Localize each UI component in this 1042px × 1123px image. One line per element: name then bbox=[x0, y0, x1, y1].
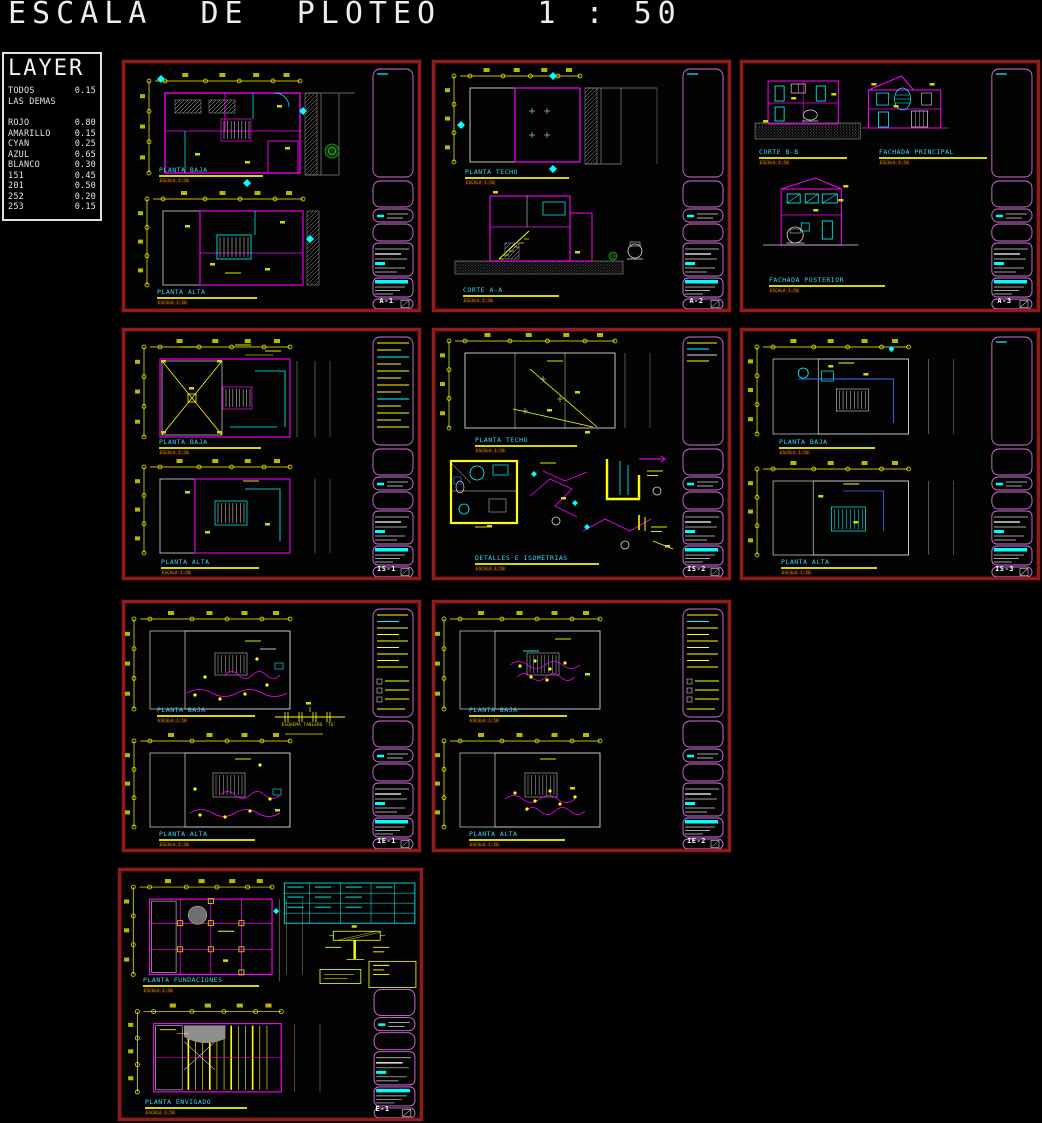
esquema-tablero-label: ESQUEMA TABLERO 'TG' bbox=[271, 722, 347, 728]
sheet-a-3[interactable]: CORTE B-BESCALA 1:50FACHADA PRINCIPALESC… bbox=[740, 60, 1040, 312]
plan-title-text: PLANTA BAJA bbox=[779, 438, 828, 446]
sheet-drawing bbox=[125, 63, 418, 309]
plan-title-underline bbox=[161, 567, 259, 569]
plan-title: DETALLES E ISOMETRIASESCALA 1:50 bbox=[475, 555, 599, 571]
plan-scale-label: ESCALA 1:50 bbox=[159, 179, 190, 183]
sheet-drawing bbox=[435, 63, 728, 309]
layer-entries: TODOS0.15LAS DEMASROJO0.80AMARILLO0.15CY… bbox=[8, 86, 96, 213]
layer-name: 253 bbox=[8, 202, 24, 213]
plan-title-text: PLANTA BAJA bbox=[159, 166, 208, 174]
plan-scale-label: ESCALA 1:50 bbox=[159, 843, 190, 847]
layer-row: AMARILLO0.15 bbox=[8, 129, 96, 140]
plan-title: PLANTA BAJAESCALA 1:50 bbox=[779, 439, 875, 455]
plan-scale-label: ESCALA 1:50 bbox=[469, 719, 500, 723]
sheet-number: IS-1 bbox=[374, 566, 399, 573]
layer-row: TODOS0.15 bbox=[8, 86, 96, 97]
plan-title-underline bbox=[159, 839, 255, 841]
plan-title: PLANTA BAJAESCALA 1:50 bbox=[159, 439, 261, 455]
layer-row: 2010.50 bbox=[8, 181, 96, 192]
sheet-number: IE-1 bbox=[374, 838, 399, 845]
plan-scale-label: ESCALA 1:50 bbox=[157, 301, 188, 305]
plan-title: FACHADA POSTERIORESCALA 1:50 bbox=[769, 277, 885, 293]
plan-title-text: FACHADA POSTERIOR bbox=[769, 276, 844, 284]
sheet-number: IE-2 bbox=[684, 838, 709, 845]
plan-scale-label: ESCALA 1:50 bbox=[161, 571, 192, 575]
plan-title-underline bbox=[143, 985, 259, 987]
plan-title-text: PLANTA BAJA bbox=[159, 438, 208, 446]
layer-name: TODOS bbox=[8, 86, 35, 97]
plan-title-underline bbox=[157, 715, 255, 717]
plan-title-text: PLANTA ALTA bbox=[157, 288, 206, 296]
plan-title-underline bbox=[463, 295, 559, 297]
layer-name: 201 bbox=[8, 181, 24, 192]
plan-title-text: DETALLES E ISOMETRIAS bbox=[475, 554, 568, 562]
plan-title-underline bbox=[465, 177, 569, 179]
plan-title-underline bbox=[159, 447, 261, 449]
plan-title-text: PLANTA BAJA bbox=[157, 706, 206, 714]
plan-scale-label: ESCALA 1:50 bbox=[157, 719, 188, 723]
sheet-number: IS-3 bbox=[992, 566, 1017, 573]
plan-title-text: PLANTA ENVIGADO bbox=[145, 1098, 211, 1106]
sheet-is-1[interactable]: PLANTA BAJAESCALA 1:50PLANTA ALTAESCALA … bbox=[122, 328, 421, 580]
layer-lineweight: 0.15 bbox=[75, 86, 96, 97]
layer-row: 1510.45 bbox=[8, 171, 96, 182]
plan-title-underline bbox=[779, 447, 875, 449]
layer-name: AZUL bbox=[8, 150, 29, 161]
sheet-number: E-1 bbox=[370, 1106, 395, 1113]
plan-title: PLANTA ENVIGADOESCALA 1:50 bbox=[145, 1099, 247, 1115]
plan-scale-label: ESCALA 1:50 bbox=[759, 161, 790, 165]
plan-title-underline bbox=[469, 715, 567, 717]
plan-title-text: PLANTA TECHO bbox=[465, 168, 518, 176]
layer-lineweight: 0.15 bbox=[75, 129, 96, 140]
plan-title-underline bbox=[157, 297, 257, 299]
layer-lineweight: 0.50 bbox=[75, 181, 96, 192]
layer-panel-title: LAYER bbox=[8, 56, 96, 81]
plan-title-underline bbox=[769, 285, 885, 287]
layer-lineweight: 0.15 bbox=[75, 202, 96, 213]
plan-scale-label: ESCALA 1:50 bbox=[475, 449, 506, 453]
sheet-ie-2[interactable]: PLANTA BAJAESCALA 1:50PLANTA ALTAESCALA … bbox=[432, 600, 731, 852]
sheet-number: A-1 bbox=[374, 298, 399, 305]
sheet-drawing bbox=[743, 63, 1037, 309]
layer-row: 2520.20 bbox=[8, 192, 96, 203]
layer-row: LAS DEMAS bbox=[8, 97, 96, 108]
plan-title: PLANTA ALTAESCALA 1:50 bbox=[781, 559, 877, 575]
sheet-is-2[interactable]: PLANTA TECHOESCALA 1:50DETALLES E ISOMET… bbox=[432, 328, 731, 580]
sheet-number: A-2 bbox=[684, 298, 709, 305]
plan-title-text: CORTE B-B bbox=[759, 148, 799, 156]
sheet-drawing bbox=[435, 331, 728, 577]
layer-name: LAS DEMAS bbox=[8, 97, 56, 108]
plan-title: PLANTA ALTAESCALA 1:50 bbox=[159, 831, 255, 847]
plan-title-underline bbox=[475, 563, 599, 565]
plan-title: PLANTA TECHOESCALA 1:50 bbox=[475, 437, 577, 453]
plan-scale-label: ESCALA 1:50 bbox=[779, 451, 810, 455]
layer-row: ROJO0.80 bbox=[8, 118, 96, 129]
plan-scale-label: ESCALA 1:50 bbox=[879, 161, 910, 165]
plan-title: CORTE B-BESCALA 1:50 bbox=[759, 149, 847, 165]
layer-lineweight: 0.20 bbox=[75, 192, 96, 203]
layer-name: CYAN bbox=[8, 139, 29, 150]
plan-title: PLANTA ALTAESCALA 1:50 bbox=[157, 289, 257, 305]
plan-title-text: PLANTA ALTA bbox=[159, 830, 208, 838]
plan-scale-label: ESCALA 1:50 bbox=[463, 299, 494, 303]
plan-scale-label: ESCALA 1:50 bbox=[769, 289, 800, 293]
plan-scale-label: ESCALA 1:50 bbox=[469, 843, 500, 847]
plan-title-underline bbox=[879, 157, 987, 159]
sheet-a-1[interactable]: PLANTA BAJAESCALA 1:50PLANTA ALTAESCALA … bbox=[122, 60, 421, 312]
plan-title: CORTE A-AESCALA 1:50 bbox=[463, 287, 559, 303]
plan-scale-label: ESCALA 1:50 bbox=[159, 451, 190, 455]
plan-title: PLANTA FUNDACIONESESCALA 1:50 bbox=[143, 977, 259, 993]
sheet-number: IS-2 bbox=[684, 566, 709, 573]
plan-title-underline bbox=[159, 175, 263, 177]
layer-name: 252 bbox=[8, 192, 24, 203]
layer-row: AZUL0.65 bbox=[8, 150, 96, 161]
plan-title-text: CORTE A-A bbox=[463, 286, 503, 294]
plot-scale-title: ESCALA DE PLOTEO 1 : 50 bbox=[8, 0, 682, 31]
plan-title-text: PLANTA ALTA bbox=[781, 558, 830, 566]
layer-name: BLANCO bbox=[8, 160, 40, 171]
cad-model-space: ESCALA DE PLOTEO 1 : 50 LAYER TODOS0.15L… bbox=[0, 0, 1042, 1123]
plan-title-text: PLANTA ALTA bbox=[161, 558, 210, 566]
sheet-drawing bbox=[121, 871, 420, 1118]
layer-row: 2530.15 bbox=[8, 202, 96, 213]
plan-title: PLANTA ALTAESCALA 1:50 bbox=[469, 831, 565, 847]
plan-title: PLANTA BAJAESCALA 1:50 bbox=[469, 707, 567, 723]
layer-lineweight: 0.80 bbox=[75, 118, 96, 129]
plan-title-text: FACHADA PRINCIPAL bbox=[879, 148, 954, 156]
plan-title-text: PLANTA BAJA bbox=[469, 706, 518, 714]
plan-scale-label: ESCALA 1:50 bbox=[781, 571, 812, 575]
plan-title-underline bbox=[469, 839, 565, 841]
plan-title-text: PLANTA ALTA bbox=[469, 830, 518, 838]
plan-title-underline bbox=[475, 445, 577, 447]
plan-title: FACHADA PRINCIPALESCALA 1:50 bbox=[879, 149, 987, 165]
plan-title: PLANTA ALTAESCALA 1:50 bbox=[161, 559, 259, 575]
plan-title-text: PLANTA TECHO bbox=[475, 436, 528, 444]
layer-lineweight: 0.30 bbox=[75, 160, 96, 171]
layer-name: AMARILLO bbox=[8, 129, 51, 140]
plan-scale-label: ESCALA 1:50 bbox=[475, 567, 506, 571]
plan-title-underline bbox=[781, 567, 877, 569]
sheet-ie-1[interactable]: PLANTA BAJAESCALA 1:50PLANTA ALTAESCALA … bbox=[122, 600, 421, 852]
layer-panel: LAYER TODOS0.15LAS DEMASROJO0.80AMARILLO… bbox=[2, 52, 102, 221]
plan-title-text: PLANTA FUNDACIONES bbox=[143, 976, 222, 984]
sheet-e-1[interactable]: PLANTA FUNDACIONESESCALA 1:50PLANTA ENVI… bbox=[118, 868, 423, 1121]
plan-scale-label: ESCALA 1:50 bbox=[465, 181, 496, 185]
sheet-is-3[interactable]: PLANTA BAJAESCALA 1:50PLANTA ALTAESCALA … bbox=[740, 328, 1040, 580]
sheet-number: A-3 bbox=[992, 298, 1017, 305]
plan-title: PLANTA TECHOESCALA 1:50 bbox=[465, 169, 569, 185]
layer-row: BLANCO0.30 bbox=[8, 160, 96, 171]
plan-title: PLANTA BAJAESCALA 1:50 bbox=[159, 167, 263, 183]
plan-title-underline bbox=[759, 157, 847, 159]
layer-lineweight: 0.25 bbox=[75, 139, 96, 150]
sheet-drawing bbox=[435, 603, 728, 849]
layer-name: 151 bbox=[8, 171, 24, 182]
plan-title-underline bbox=[145, 1107, 247, 1109]
layer-lineweight: 0.45 bbox=[75, 171, 96, 182]
sheet-a-2[interactable]: PLANTA TECHOESCALA 1:50CORTE A-AESCALA 1… bbox=[432, 60, 731, 312]
plan-title: PLANTA BAJAESCALA 1:50 bbox=[157, 707, 255, 723]
layer-name: ROJO bbox=[8, 118, 29, 129]
plan-scale-label: ESCALA 1:50 bbox=[145, 1111, 176, 1115]
plan-scale-label: ESCALA 1:50 bbox=[143, 989, 174, 993]
layer-row: CYAN0.25 bbox=[8, 139, 96, 150]
layer-lineweight: 0.65 bbox=[75, 150, 96, 161]
